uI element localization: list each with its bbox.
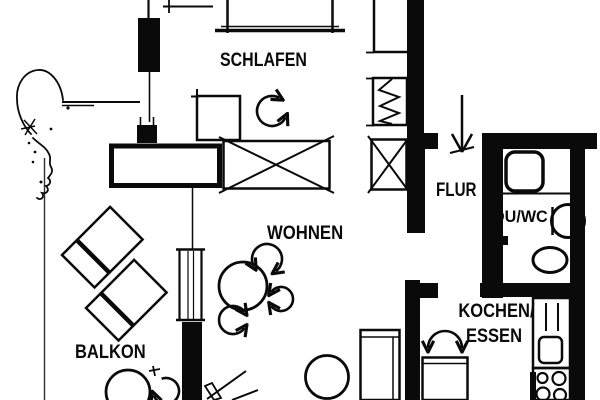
floor-plan: SCHLAFEN WOHNEN BALKON FLUR DU/WC KOCHEN… bbox=[0, 0, 600, 400]
cupboard bbox=[360, 330, 400, 400]
closet bbox=[366, 0, 407, 53]
window-balcony-door bbox=[176, 187, 205, 321]
room-label-kochen-line1: KOCHEN/ bbox=[458, 299, 529, 324]
room-label-wohnen: WOHNEN bbox=[267, 224, 343, 245]
kitchen-table bbox=[422, 358, 468, 400]
entry-arrow-icon bbox=[450, 95, 474, 153]
dining-table bbox=[219, 262, 267, 310]
lounge-chair bbox=[86, 260, 167, 341]
chair-arc-schlafen bbox=[257, 96, 286, 126]
door-leaf-open bbox=[205, 371, 258, 400]
shower bbox=[506, 152, 543, 191]
balcony-table bbox=[106, 370, 150, 400]
room-label-kochen-essen: KOCHEN/ ESSEN bbox=[458, 299, 529, 349]
wall-axis-lines bbox=[62, 0, 213, 126]
nightstand bbox=[191, 89, 240, 140]
kitchen-unit bbox=[533, 298, 570, 368]
stove bbox=[533, 368, 570, 400]
room-label-kochen-line2: ESSEN bbox=[458, 324, 529, 349]
wardrobe-crossed-box-small bbox=[368, 136, 410, 193]
bed bbox=[215, 0, 345, 33]
toilet bbox=[533, 248, 567, 273]
sideboard bbox=[112, 146, 220, 186]
door-swing-kitchen bbox=[428, 331, 462, 348]
chair-arc-balcony bbox=[149, 366, 179, 400]
sink bbox=[539, 337, 562, 363]
side-table bbox=[306, 356, 349, 399]
room-label-schlafen: SCHLAFEN bbox=[220, 51, 307, 72]
face-doodle bbox=[17, 70, 70, 199]
lounge-chair bbox=[62, 207, 143, 288]
room-label-flur: FLUR bbox=[436, 181, 477, 202]
wardrobe-crossed-box bbox=[219, 136, 334, 193]
chair-arc-wohnen-right bbox=[271, 287, 293, 311]
radiator-icon bbox=[366, 78, 407, 126]
room-label-balkon: BALKON bbox=[75, 343, 146, 364]
room-label-duwc: DU/WC bbox=[493, 208, 548, 227]
